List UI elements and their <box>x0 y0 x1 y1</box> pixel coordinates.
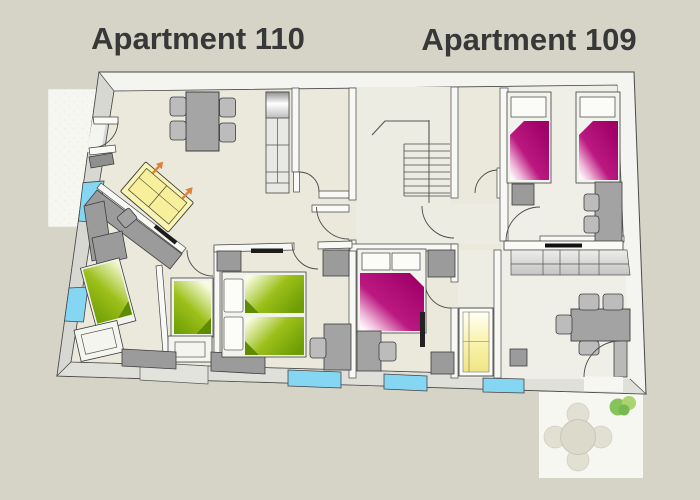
svg-text:Apartment 109: Apartment 109 <box>421 22 636 57</box>
svg-text:Apartment 110: Apartment 110 <box>91 21 305 56</box>
